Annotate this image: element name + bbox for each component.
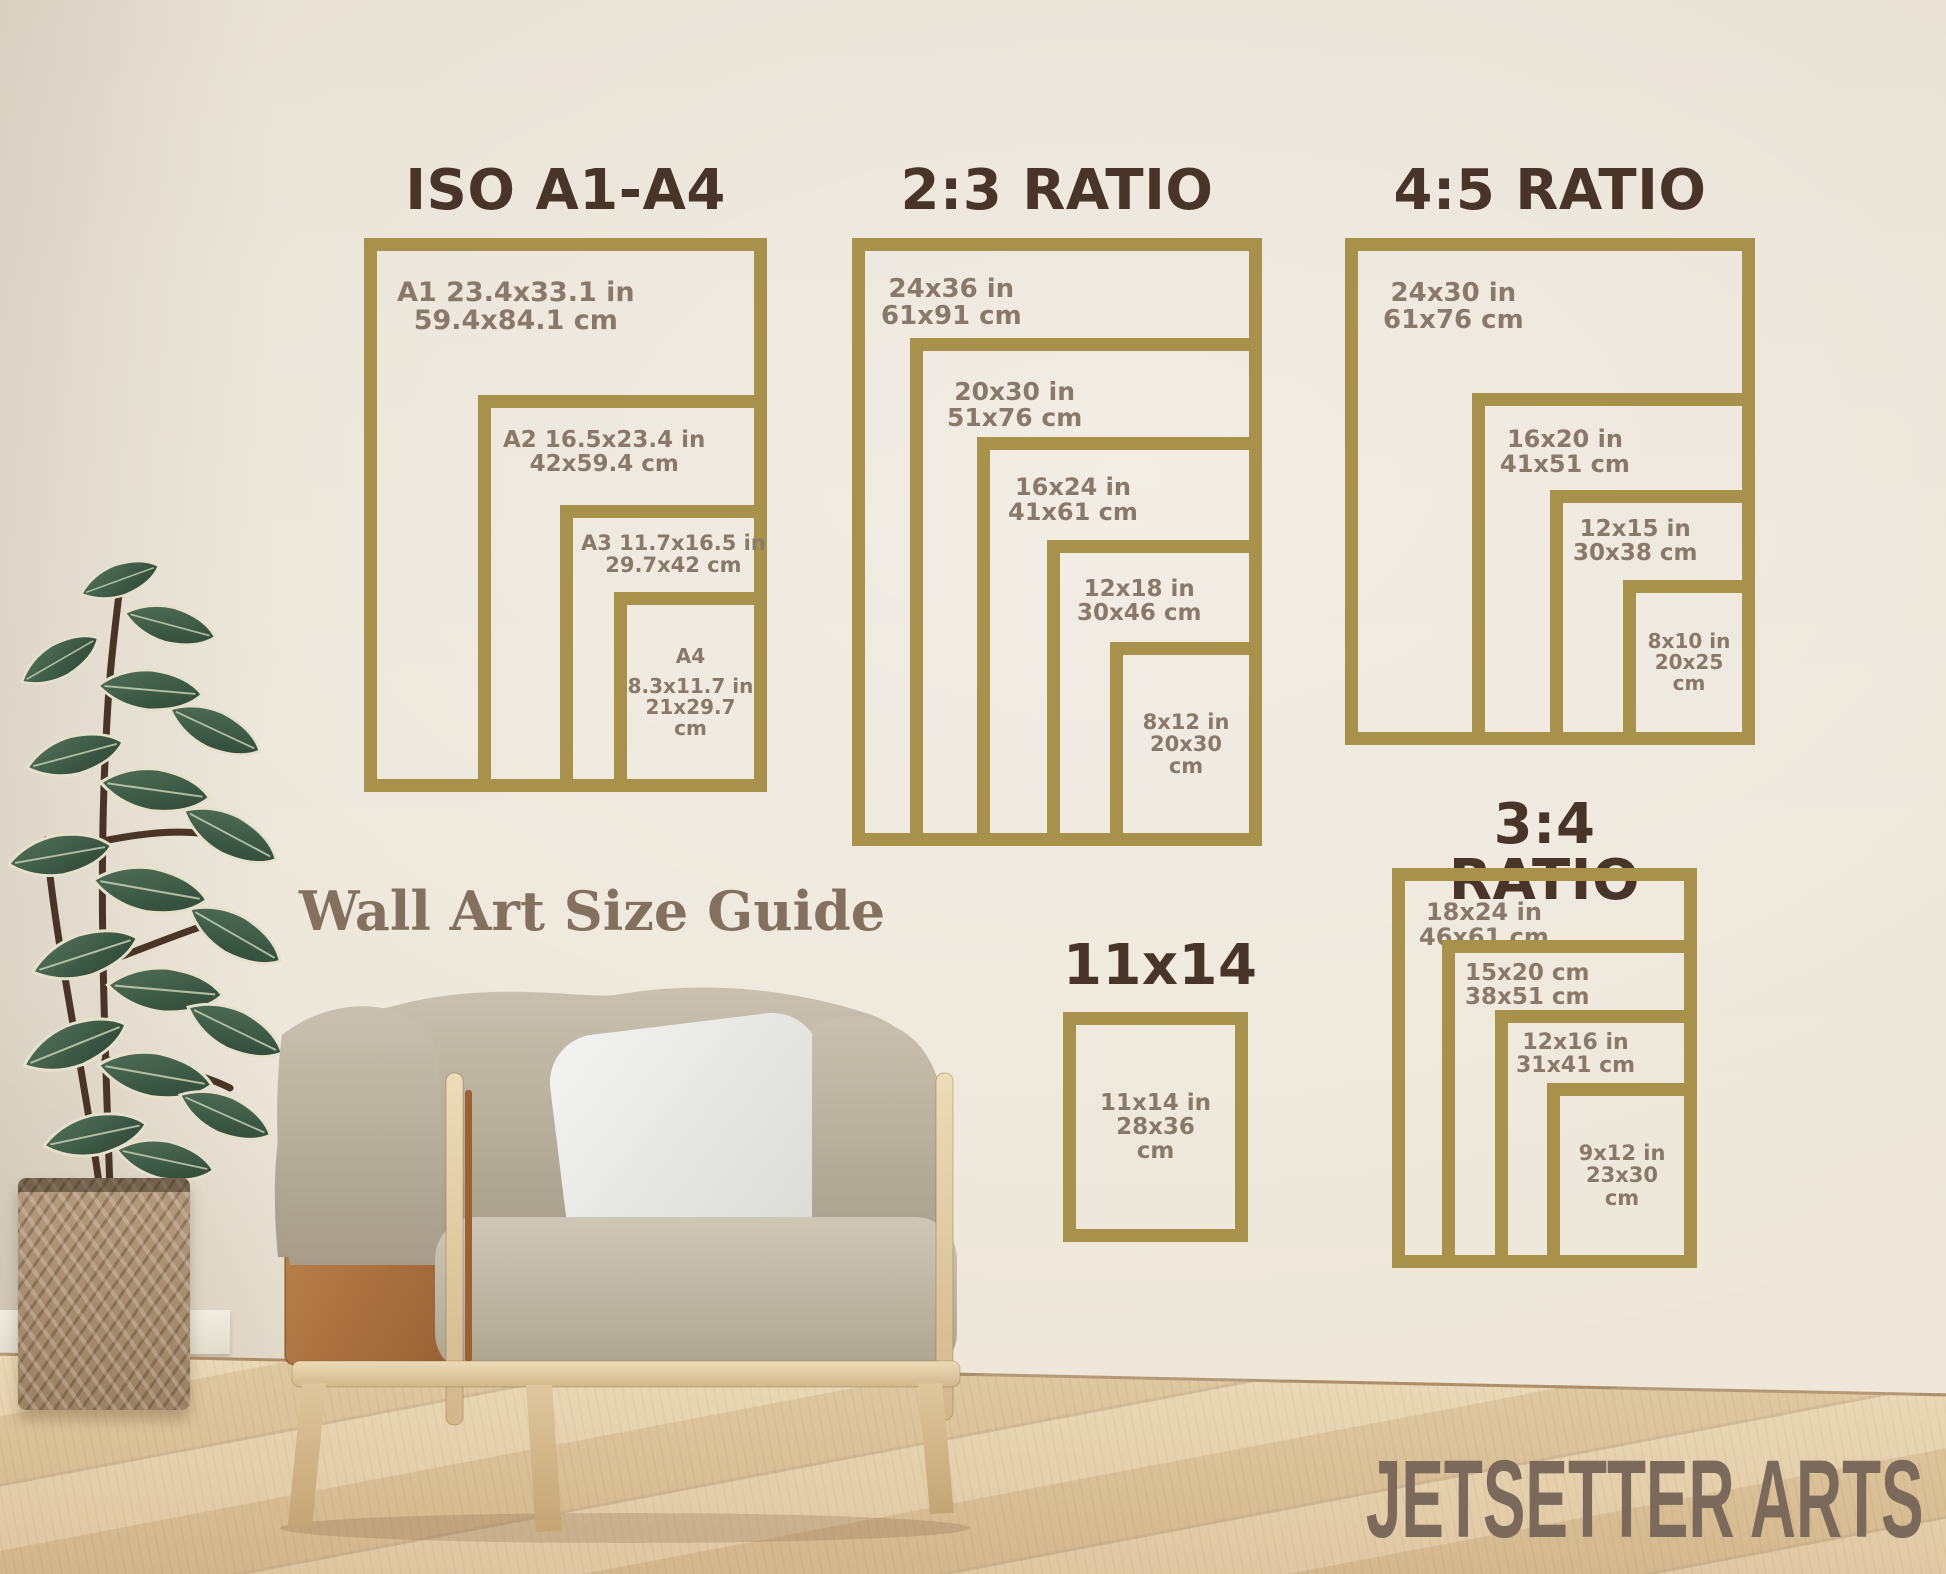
frame-label-8x12: 8x12 in 20x30 cm (1123, 655, 1249, 833)
frame-label-9x12: 9x12 in 23x30 cm (1560, 1096, 1684, 1255)
center-leg (526, 1385, 562, 1532)
frame-label-8x10: 8x10 in 20x25 cm (1636, 593, 1742, 732)
size-cm: 31x41 cm (1516, 1054, 1635, 1077)
wall-art-size-guide-poster: ISO A1-A4 A1 23.4x33.1 in 59.4x84.1 cm A… (0, 0, 1946, 1574)
frame-label-11x14: 11x14 in 28x36 cm (1076, 1025, 1235, 1229)
woven-planter-basket (18, 1178, 190, 1410)
planter-rim (18, 1178, 190, 1192)
armchair (250, 965, 980, 1545)
size-in: 24x30 in (1383, 280, 1524, 307)
brand-watermark: JETSETTER ARTS (1366, 1445, 1924, 1555)
size-in: 18x24 in (1419, 900, 1549, 925)
size-in: A2 16.5x23.4 in (503, 428, 705, 452)
size-cm: 20x30 (1150, 733, 1222, 755)
size-unit: cm (1137, 1139, 1175, 1163)
size-cm: 59.4x84.1 cm (397, 307, 635, 335)
frame-label-24x30: 24x30 in 61x76 cm (1383, 280, 1524, 335)
frame-a4: A4 8.3x11.7 in 21x29.7 cm (614, 592, 767, 792)
frame-24x30: 24x30 in 61x76 cm 16x20 in 41x51 cm 12x1… (1345, 238, 1755, 745)
frame-a1: A1 23.4x33.1 in 59.4x84.1 cm A2 16.5x23.… (364, 238, 767, 792)
size-in: 8x10 in (1648, 631, 1731, 652)
size-in: 20x30 in (947, 379, 1082, 405)
size-cm: 41x51 cm (1500, 452, 1630, 477)
group-title-2-3: 2:3 RATIO (852, 163, 1262, 219)
size-in: 8.3x11.7 in (628, 676, 754, 697)
size-in: 12x18 in (1077, 577, 1201, 601)
size-unit: cm (1605, 1187, 1639, 1209)
size-cm: 51x76 cm (947, 405, 1082, 431)
size-cm: 61x76 cm (1383, 307, 1524, 334)
group-title-4-5: 4:5 RATIO (1345, 163, 1755, 219)
size-in: 24x36 in (881, 276, 1022, 303)
size-unit: cm (1673, 673, 1706, 694)
frame-label-12x18: 12x18 in 30x46 cm (1077, 577, 1201, 625)
size-in: 12x16 in (1516, 1031, 1635, 1054)
size-in: 16x24 in (1008, 475, 1138, 500)
size-cm: 23x30 (1586, 1164, 1658, 1186)
size-cm: 38x51 cm (1465, 985, 1589, 1009)
size-in: 16x20 in (1500, 427, 1630, 452)
frame-label-16x24: 16x24 in 41x61 cm (1008, 475, 1138, 525)
size-in: A1 23.4x33.1 in (397, 279, 635, 307)
size-cm: 29.7x42 cm (581, 554, 766, 576)
frame-label-a3: A3 11.7x16.5 in 29.7x42 cm (581, 532, 766, 576)
base-rail (292, 1361, 960, 1387)
size-cm: 20x25 (1655, 652, 1724, 673)
size-cm: 42x59.4 cm (503, 452, 705, 476)
seat-cushion (435, 1217, 957, 1375)
guide-caption: Wall Art Size Guide (292, 884, 892, 938)
frame-label-12x15: 12x15 in 30x38 cm (1573, 517, 1697, 565)
frame-8x12: 8x12 in 20x30 cm (1110, 642, 1262, 846)
frame-label-12x16: 12x16 in 31x41 cm (1516, 1031, 1635, 1077)
frame-label-20x30: 20x30 in 51x76 cm (947, 379, 1082, 432)
size-cm: 28x36 (1116, 1115, 1195, 1139)
size-in: A3 11.7x16.5 in (581, 532, 766, 554)
size-in: 11x14 in (1100, 1091, 1211, 1115)
size-in: 9x12 in (1579, 1142, 1666, 1164)
leather-strap (465, 1090, 472, 1362)
frame-label-16x20: 16x20 in 41x51 cm (1500, 427, 1630, 477)
frame-label-a4: A4 8.3x11.7 in 21x29.7 cm (627, 605, 754, 779)
size-in: 15x20 cm (1465, 961, 1589, 985)
frame-label-24x36: 24x36 in 61x91 cm (881, 276, 1022, 331)
left-arm-cushion (277, 1006, 442, 1265)
left-leg (288, 1383, 326, 1527)
size-cm: 30x46 cm (1077, 601, 1201, 625)
size-cm: 21x29.7 (645, 697, 735, 718)
size-name: A4 (676, 646, 705, 667)
frame-label-15x20: 15x20 cm 38x51 cm (1465, 961, 1589, 1009)
frame-label-a2: A2 16.5x23.4 in 42x59.4 cm (503, 428, 705, 476)
size-cm: 30x38 cm (1573, 541, 1697, 565)
size-unit: cm (674, 718, 707, 739)
frame-8x10: 8x10 in 20x25 cm (1623, 580, 1755, 745)
chair-shadow (280, 1513, 970, 1543)
frame-24x36: 24x36 in 61x91 cm 20x30 in 51x76 cm 16x2… (852, 238, 1262, 846)
frame-label-a1: A1 23.4x33.1 in 59.4x84.1 cm (397, 279, 635, 336)
frame-11x14: 11x14 in 28x36 cm (1063, 1012, 1248, 1242)
group-title-11x14: 11x14 (1063, 938, 1248, 994)
group-title-iso: ISO A1-A4 (364, 163, 767, 219)
size-in: 12x15 in (1573, 517, 1697, 541)
size-cm: 61x91 cm (881, 303, 1022, 330)
frame-9x12: 9x12 in 23x30 cm (1547, 1083, 1697, 1268)
frame-18x24: 18x24 in 46x61 cm 15x20 cm 38x51 cm 12x1… (1392, 868, 1697, 1268)
size-cm: 41x61 cm (1008, 500, 1138, 525)
size-unit: cm (1169, 755, 1203, 777)
size-in: 8x12 in (1143, 711, 1230, 733)
